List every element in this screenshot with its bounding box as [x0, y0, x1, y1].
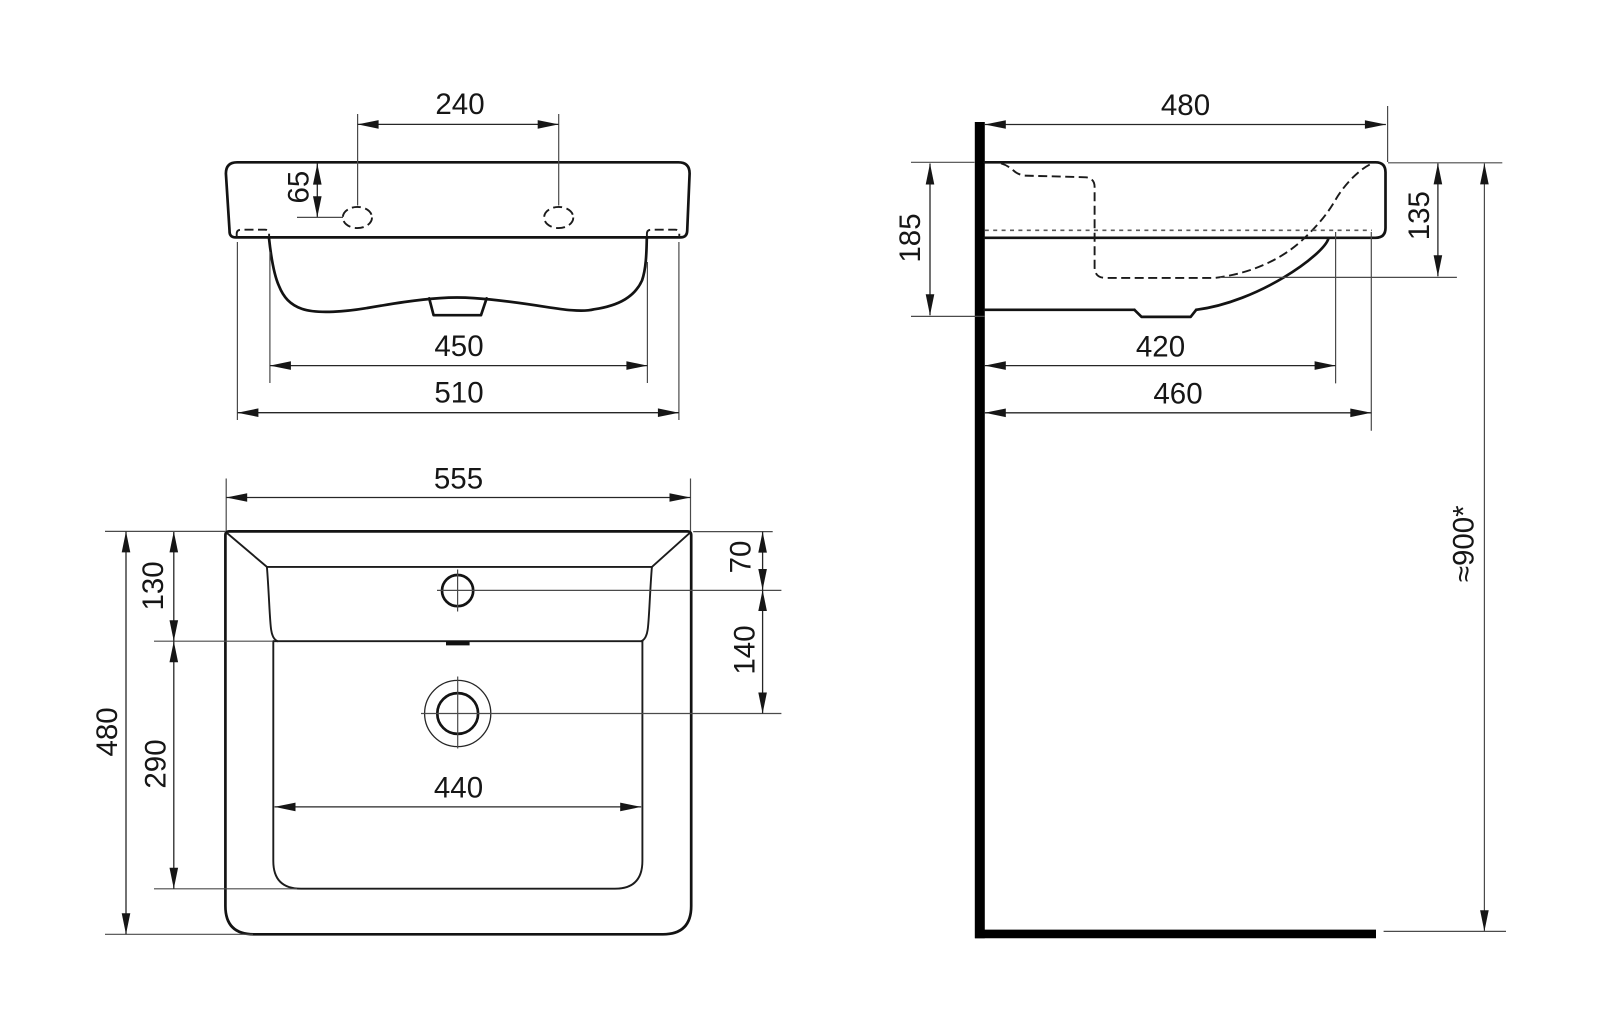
svg-text:70: 70 — [725, 541, 758, 574]
svg-text:290: 290 — [139, 739, 172, 788]
svg-text:135: 135 — [1403, 191, 1436, 240]
svg-text:450: 450 — [434, 330, 483, 363]
svg-text:185: 185 — [894, 213, 927, 262]
svg-text:480: 480 — [1161, 89, 1210, 122]
svg-text:460: 460 — [1153, 378, 1202, 411]
svg-text:140: 140 — [728, 625, 761, 674]
svg-text:240: 240 — [435, 88, 484, 121]
svg-text:555: 555 — [434, 462, 483, 495]
svg-text:440: 440 — [434, 771, 483, 804]
svg-text:130: 130 — [137, 561, 170, 610]
svg-text:480: 480 — [91, 707, 124, 756]
svg-text:420: 420 — [1136, 330, 1185, 363]
svg-text:65: 65 — [283, 171, 316, 204]
svg-text:510: 510 — [434, 377, 483, 410]
svg-text:≈900*: ≈900* — [1448, 505, 1481, 582]
